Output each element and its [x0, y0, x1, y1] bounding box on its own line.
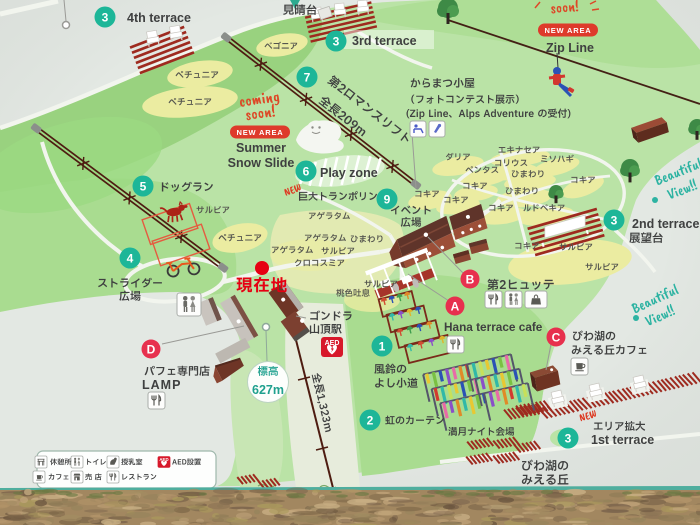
svg-text:9: 9	[384, 192, 391, 206]
svg-text:Hana terrace cafe: Hana terrace cafe	[444, 320, 543, 334]
svg-text:4th terrace: 4th terrace	[127, 11, 191, 25]
svg-text:C: C	[552, 330, 561, 344]
svg-text:Play zone: Play zone	[320, 166, 378, 180]
svg-text:AED: AED	[159, 457, 168, 462]
svg-text:AED: AED	[325, 340, 340, 347]
svg-text:Summer: Summer	[236, 141, 286, 155]
svg-text:2nd terrace: 2nd terrace	[632, 217, 699, 231]
svg-text:D: D	[147, 342, 156, 356]
svg-text:2: 2	[367, 413, 374, 427]
svg-text:627m: 627m	[252, 383, 284, 397]
svg-text:3: 3	[611, 213, 618, 227]
svg-text:3: 3	[102, 10, 109, 24]
svg-text:Snow Slide: Snow Slide	[228, 156, 295, 170]
svg-text:NEW AREA: NEW AREA	[237, 128, 284, 137]
svg-text:1: 1	[379, 339, 386, 353]
svg-text:A: A	[451, 299, 460, 313]
svg-text:7: 7	[304, 70, 311, 84]
svg-text:6: 6	[303, 164, 310, 178]
svg-text:3: 3	[333, 34, 340, 48]
svg-text:3: 3	[565, 431, 572, 445]
svg-text:B: B	[466, 272, 475, 286]
svg-text:1st terrace: 1st terrace	[591, 433, 654, 447]
svg-text:LAMP: LAMP	[142, 378, 181, 392]
svg-text:4: 4	[127, 251, 134, 265]
svg-text:NEW AREA: NEW AREA	[545, 26, 592, 35]
svg-text:Zip Line: Zip Line	[546, 41, 594, 55]
svg-text:5: 5	[140, 179, 147, 193]
svg-text:3rd terrace: 3rd terrace	[352, 34, 417, 48]
